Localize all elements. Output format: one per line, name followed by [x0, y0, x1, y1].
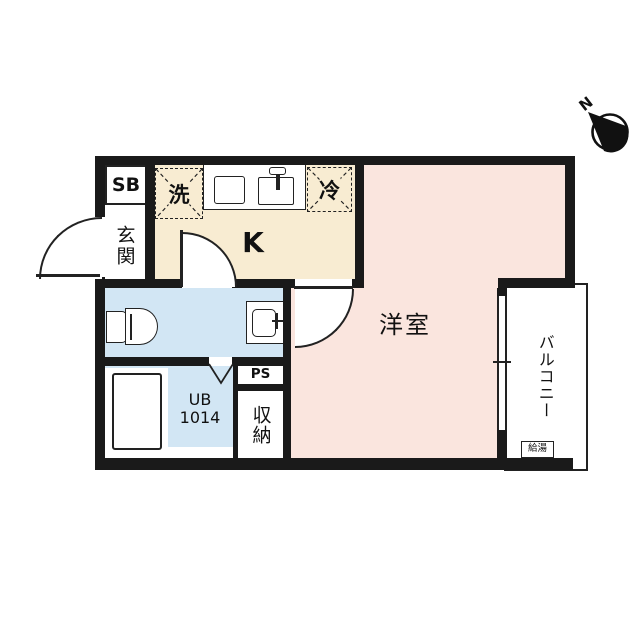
folding-door-icon	[207, 362, 235, 386]
wall-left-upper	[95, 156, 105, 217]
unit-bath-line2: 1014	[180, 409, 221, 427]
faucet-stem	[276, 175, 280, 190]
faucet-icon	[269, 167, 286, 175]
wall-mid-h-right	[352, 279, 364, 288]
fridge-box: 冷	[307, 167, 352, 212]
window-stub-bottom	[497, 430, 507, 461]
toilet-tank-icon	[106, 311, 127, 343]
toilet-seat-line	[130, 314, 132, 340]
wall-mid-h-left	[95, 279, 182, 288]
wall-ps-bottom	[233, 384, 291, 391]
window-stub-top	[497, 288, 507, 296]
toilet-door-leaf	[180, 230, 183, 287]
entrance-door-leaf	[36, 274, 100, 277]
wall-kitchen-right	[355, 165, 364, 288]
entrance-label: 玄関	[110, 214, 138, 278]
wall-entrance-right	[145, 165, 155, 288]
shoe-box: SB	[105, 165, 147, 205]
washer-box: 洗	[155, 168, 203, 219]
room-door-leaf	[294, 286, 353, 289]
washer-label: 洗	[169, 179, 190, 209]
pipe-space-label: PS	[238, 365, 283, 384]
unit-bath-threshold	[168, 447, 233, 458]
window-meeting-rail	[493, 361, 511, 363]
basin-faucet-v	[276, 313, 278, 329]
unit-bath-line1: UB	[189, 391, 212, 409]
wall-balcony-top	[498, 278, 575, 288]
kitchen-label: K	[238, 226, 268, 260]
wash-basin-bowl	[252, 309, 276, 337]
wall-top	[95, 156, 575, 165]
western-room-label: 洋室	[375, 311, 435, 339]
wall-toilet-right	[283, 288, 291, 461]
unit-bath-label: UB 1014	[170, 388, 230, 430]
fridge-label: 冷	[319, 175, 340, 205]
shoe-box-label: SB	[112, 175, 140, 196]
water-heater-label: 給湯	[521, 441, 554, 458]
bathtub-icon	[112, 373, 162, 450]
floor-plan: N 洗 冷	[0, 0, 639, 640]
entrance-door-swing	[39, 217, 102, 279]
wall-left-lower	[95, 277, 105, 470]
balcony-label: バルコニー	[532, 314, 558, 438]
stove-top-icon	[214, 176, 245, 204]
wall-mid-h-center	[232, 279, 295, 288]
storage-label: 収納	[247, 397, 273, 453]
balcony-window	[497, 296, 507, 430]
wall-toilet-bottom-left	[104, 357, 209, 366]
wall-right-upper	[565, 156, 575, 288]
